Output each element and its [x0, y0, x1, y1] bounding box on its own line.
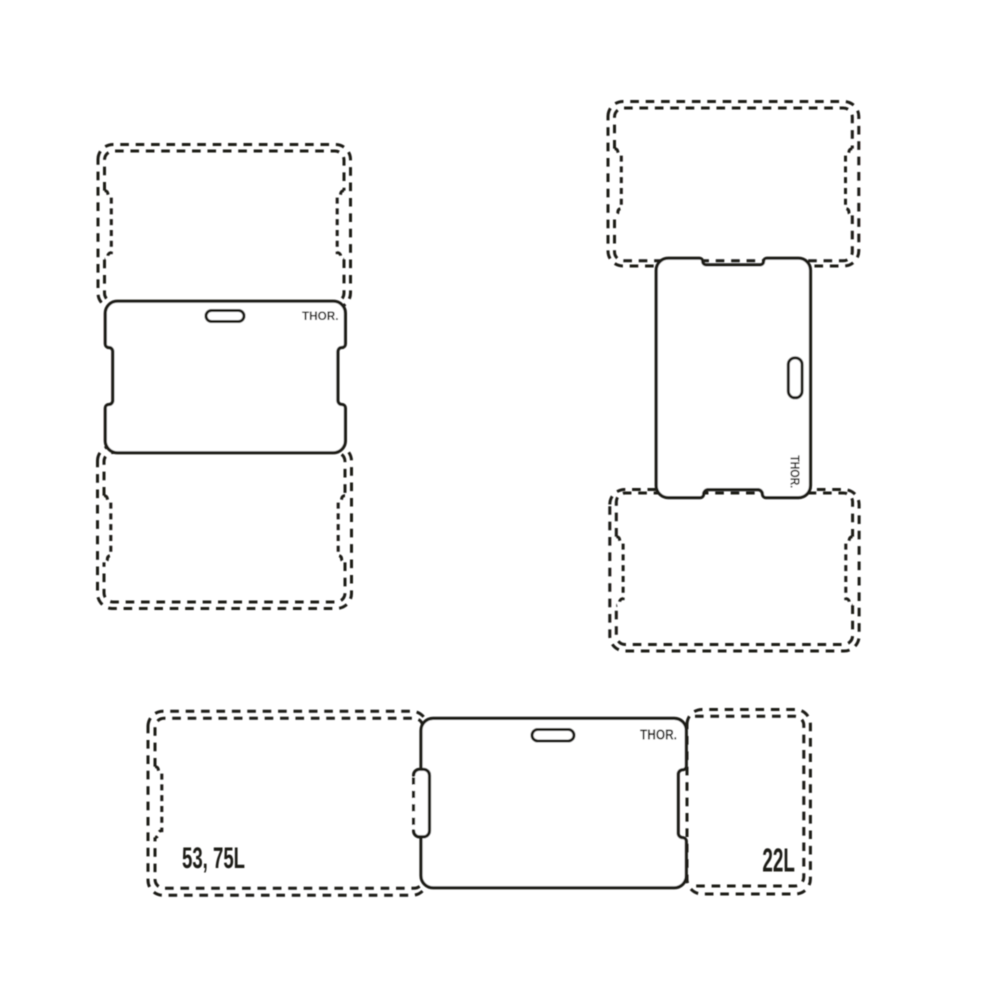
svg-text:22L: 22L	[762, 842, 795, 879]
svg-text:THOR.: THOR.	[302, 309, 339, 323]
svg-text:53, 75L: 53, 75L	[182, 843, 245, 875]
svg-text:THOR.: THOR.	[640, 727, 677, 743]
svg-text:THOR.: THOR.	[788, 455, 803, 488]
